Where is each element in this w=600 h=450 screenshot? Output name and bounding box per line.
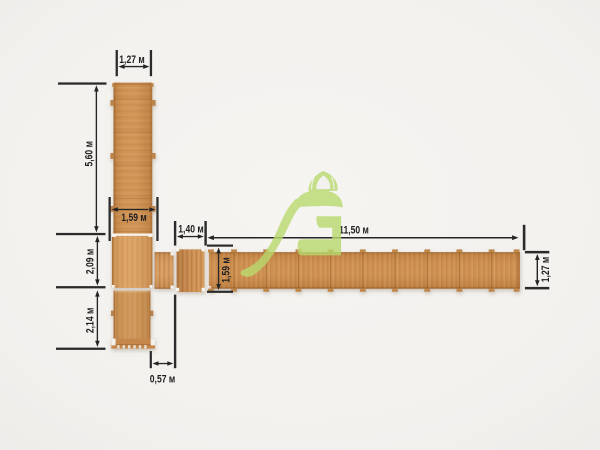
svg-text:0,57 м: 0,57 м [150,373,175,385]
svg-text:1,59 м: 1,59 м [221,257,233,282]
svg-text:1,27 м: 1,27 м [119,54,144,66]
svg-text:1,40 м: 1,40 м [178,224,203,236]
svg-text:5,60 м: 5,60 м [84,141,96,166]
svg-text:1,59 м: 1,59 м [121,212,146,224]
svg-text:11,50 м: 11,50 м [339,224,369,236]
svg-text:2,14 м: 2,14 м [85,308,97,333]
svg-text:2,09 м: 2,09 м [85,249,97,274]
svg-text:1,27 м: 1,27 м [540,257,552,282]
